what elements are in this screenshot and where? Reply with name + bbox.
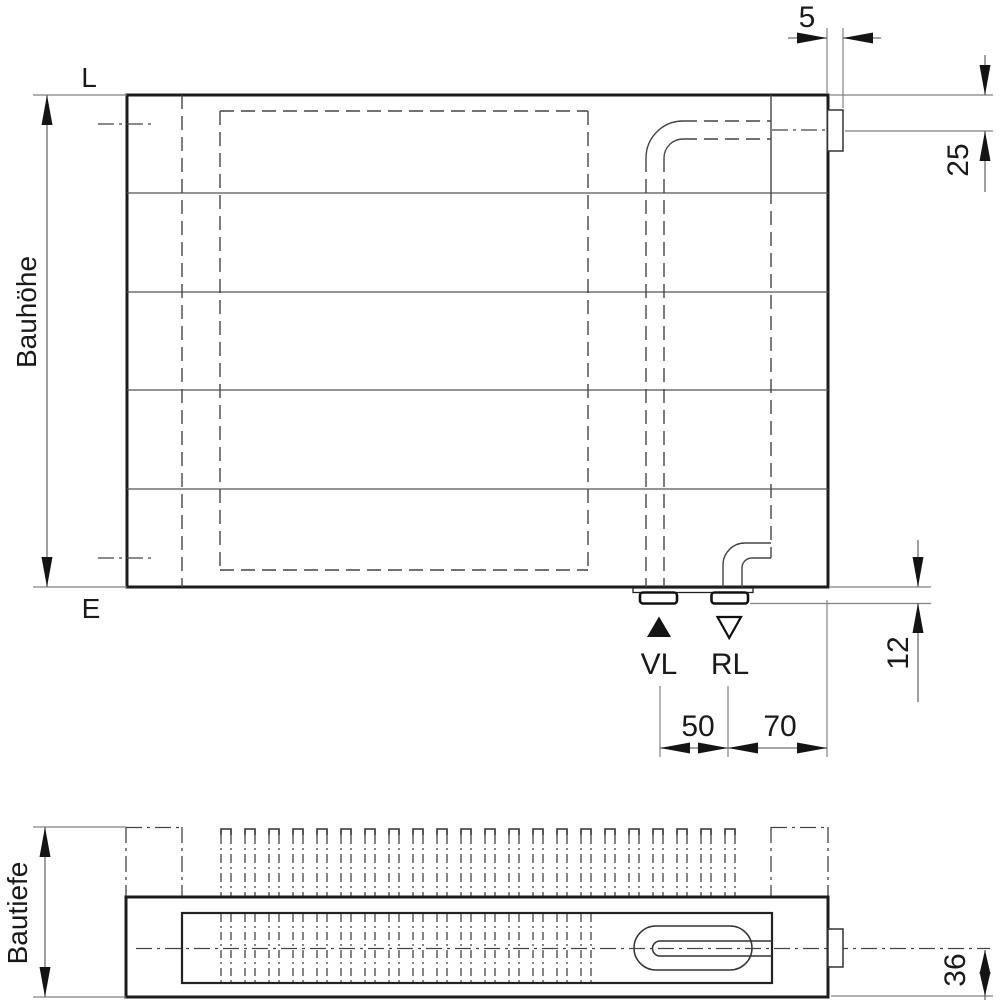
bautiefe-label: Bautiefe: [2, 862, 33, 965]
dim-70: 70: [763, 710, 796, 743]
radiator-outline: [127, 95, 828, 587]
label-e: E: [82, 593, 101, 624]
technical-drawing-canvas: VL RL L E Bauhöhe 5 25: [0, 0, 1000, 1000]
return-pipe-elbow: [723, 543, 771, 587]
dim-50: 50: [681, 710, 714, 743]
hidden-fin-zone-rect: [220, 111, 588, 570]
dim-36: 36: [939, 953, 972, 986]
dim-25: 25: [942, 143, 975, 176]
fin-comb-pattern: [221, 829, 735, 896]
vl-stub: [640, 593, 677, 604]
front-view: VL RL L E: [81, 62, 843, 681]
bauhoehe-label: Bauhöhe: [11, 256, 42, 368]
flow-triangle-icon: [647, 617, 671, 638]
panel-section-lines: [127, 193, 828, 489]
front-dimensions: Bauhöhe 5 25 12 50 70: [11, 1, 993, 757]
vl-label: VL: [641, 648, 678, 681]
radiator-drawing: VL RL L E Bauhöhe 5 25: [0, 0, 1000, 1000]
bottom-view: [126, 827, 990, 997]
dim-5: 5: [799, 1, 816, 34]
rl-stub: [712, 593, 749, 604]
side-connection-tab: [828, 110, 844, 151]
bottom-connections: [633, 588, 753, 604]
label-l: L: [81, 62, 97, 93]
rl-label: RL: [711, 648, 749, 681]
return-triangle-icon: [718, 617, 742, 638]
flow-pipe: [646, 121, 771, 587]
dim-12: 12: [882, 636, 915, 669]
bottom-side-tab: [828, 929, 843, 967]
